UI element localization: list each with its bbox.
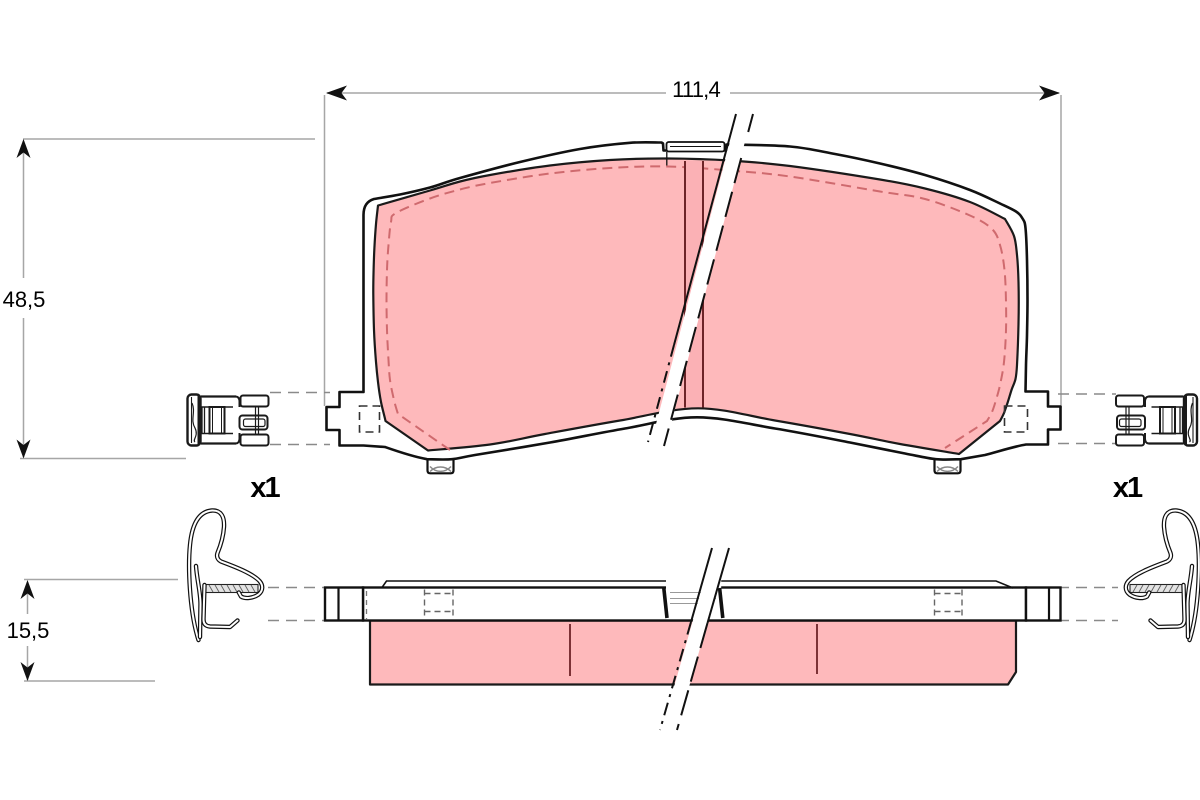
svg-text:x1: x1	[250, 472, 280, 504]
svg-text:x1: x1	[1113, 472, 1143, 504]
svg-text:15,5: 15,5	[7, 618, 50, 643]
svg-text:111,4: 111,4	[672, 77, 720, 102]
svg-text:48,5: 48,5	[3, 287, 46, 312]
